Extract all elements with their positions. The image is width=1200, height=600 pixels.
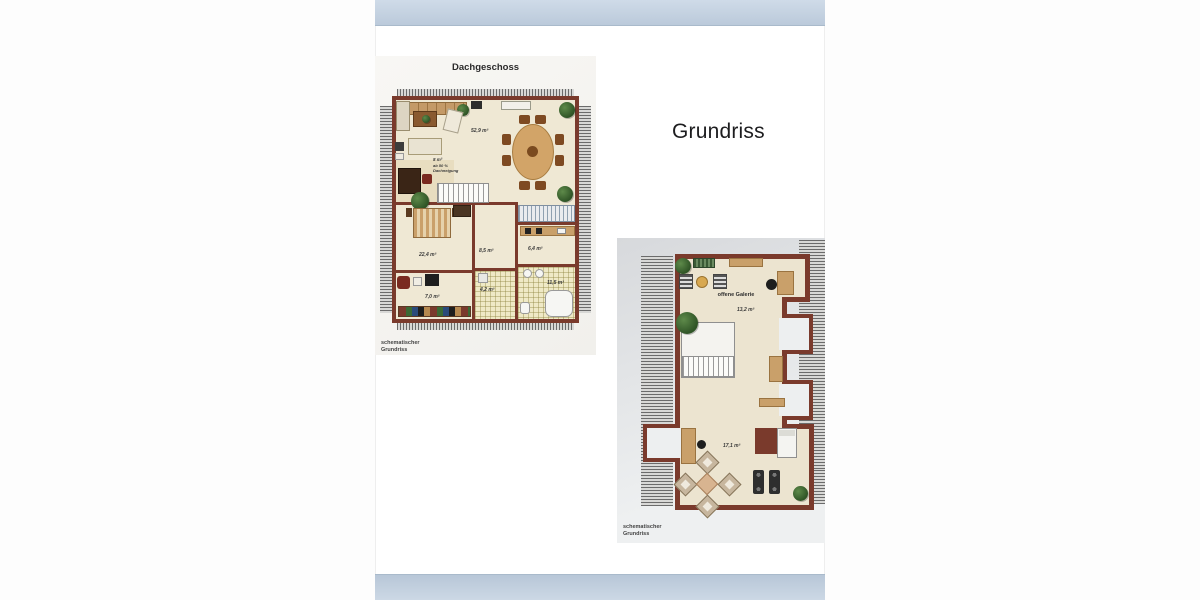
plan2-caption-line2: Grundriss [623, 531, 662, 538]
desk [398, 168, 421, 194]
stove [536, 228, 542, 234]
floorplan-photo-dachgeschoss: Dachgeschoss [375, 56, 596, 355]
wardrobe [453, 205, 471, 217]
desk-chair [422, 174, 432, 184]
plan1-title: Dachgeschoss [375, 62, 596, 73]
page-title: Grundriss [672, 120, 765, 144]
dining-chair [502, 155, 511, 166]
office-chair [766, 279, 777, 290]
plant-icon [675, 258, 691, 274]
side-table [413, 277, 422, 286]
table-centerpiece [527, 146, 538, 157]
nightstand [406, 208, 412, 217]
roof-hatch-left [380, 106, 392, 313]
area-label-room-center: 8,5 m² [479, 248, 493, 254]
plan2-caption: schematischer Grundriss [623, 524, 662, 538]
fitness-equipment [753, 470, 764, 494]
side-table [395, 142, 404, 151]
plan1-caption-line2: Grundriss [381, 347, 420, 354]
area-label-room: 17,1 m² [723, 443, 740, 449]
plant-icon [793, 486, 808, 501]
roof-hatch-right [579, 106, 591, 313]
plan1-caption: schematischer Grundriss [381, 340, 420, 354]
dining-chair [535, 181, 546, 190]
dining-chair [502, 134, 511, 145]
roof-hatch-left [641, 256, 673, 506]
round-table [696, 276, 708, 288]
dining-chair [535, 115, 546, 124]
cabinet [769, 356, 783, 382]
plant-icon [557, 186, 573, 202]
armchair [713, 274, 727, 289]
area-label-bedroom: 22,4 m² [419, 252, 436, 258]
fitness-equipment [769, 470, 780, 494]
plant-icon [422, 115, 430, 123]
page: Grundriss Dachgeschoss [0, 0, 1200, 600]
area-label-bath: 11,5 m² [547, 280, 564, 286]
closet [398, 306, 471, 317]
roof-hatch-top [397, 89, 574, 96]
area-label-loft: 8 m² [433, 157, 442, 162]
dormer-alcove [643, 424, 679, 462]
pillow [779, 430, 795, 436]
sideboard [501, 101, 531, 110]
dining-chair [555, 155, 564, 166]
area-label-living: 52,9 m² [471, 128, 488, 134]
dining-chair [555, 134, 564, 145]
floorplan-photo-galerie: offene Galerie 13,2 m² 17,1 m² schematis… [617, 238, 825, 543]
roof-hatch-bottom [397, 323, 574, 330]
staircase [682, 356, 734, 377]
sideboard [729, 258, 763, 267]
wall [396, 270, 475, 273]
desk [681, 428, 696, 464]
sofa [408, 138, 442, 155]
dining-chair [519, 181, 530, 190]
plan1-caption-line1: schematischer [381, 340, 420, 347]
sideboard [759, 398, 785, 407]
desk [777, 271, 794, 295]
armchair [679, 274, 693, 289]
plan2-caption-line1: schematischer [623, 524, 662, 531]
staircase [437, 183, 489, 203]
bathtub [545, 290, 573, 317]
plant-icon [559, 102, 575, 118]
bench [693, 258, 715, 268]
sink [523, 269, 532, 278]
dining-chair [519, 115, 530, 124]
office-chair [697, 440, 706, 449]
kitchen-sink [557, 228, 566, 234]
stairwell-void [518, 205, 575, 222]
stove [525, 228, 531, 234]
area-label-hall: 4,2 m² [480, 287, 494, 293]
toilet [520, 302, 530, 314]
side-table [395, 153, 404, 160]
sink [535, 269, 544, 278]
area-label-kitchen: 6,4 m² [528, 246, 542, 252]
armchair [397, 276, 410, 289]
area-note-2: Dachneigung [433, 168, 458, 173]
alcove-opening [779, 318, 789, 350]
washer [478, 273, 488, 283]
tv [425, 274, 439, 286]
cabinet [396, 101, 410, 131]
plant-icon [676, 312, 698, 334]
top-banner [375, 0, 825, 26]
room-label-gallery: offene Galerie [705, 292, 767, 298]
wardrobe [755, 428, 777, 454]
tv-sideboard [471, 101, 482, 109]
area-label-gallery: 13,2 m² [737, 307, 754, 313]
wall [518, 222, 579, 225]
bed [413, 208, 451, 238]
bottom-banner [375, 574, 825, 600]
area-label-room-left: 7,0 m² [425, 294, 439, 300]
